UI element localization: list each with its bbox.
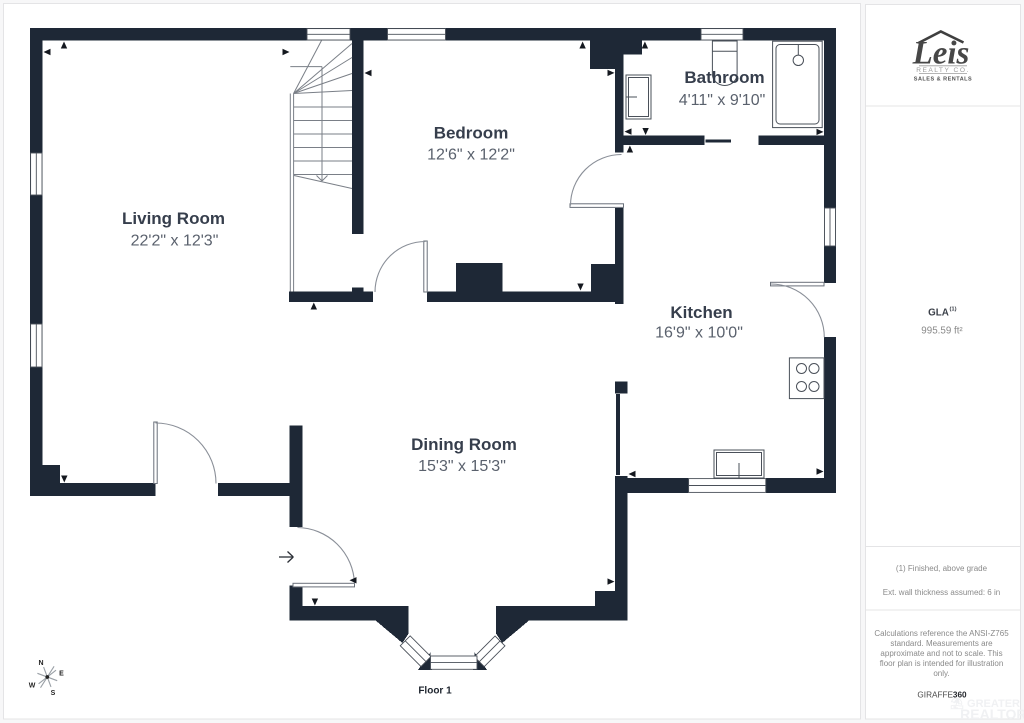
svg-text:4'11" x 9'10": 4'11" x 9'10" bbox=[679, 92, 766, 109]
svg-text:REALTY CO.: REALTY CO. bbox=[916, 67, 970, 74]
svg-text:REALTORS: REALTORS bbox=[960, 706, 1024, 722]
svg-text:12'6" x 12'2": 12'6" x 12'2" bbox=[427, 147, 515, 164]
svg-text:(1) Finished, above grade: (1) Finished, above grade bbox=[896, 564, 988, 573]
svg-text:approximate and not to scale.: approximate and not to scale. This bbox=[880, 649, 1002, 658]
svg-text:22'2" x 12'3": 22'2" x 12'3" bbox=[131, 233, 219, 250]
svg-text:Dining Room: Dining Room bbox=[411, 435, 517, 454]
svg-text:995.59 ft²: 995.59 ft² bbox=[921, 326, 963, 337]
svg-text:Bedroom: Bedroom bbox=[434, 124, 509, 143]
svg-text:Ext. wall thickness assumed: 6: Ext. wall thickness assumed: 6 in bbox=[883, 588, 1000, 597]
svg-text:16'9" x 10'0": 16'9" x 10'0" bbox=[655, 325, 743, 342]
svg-text:only.: only. bbox=[933, 669, 949, 678]
svg-text:(1): (1) bbox=[950, 307, 957, 313]
svg-text:GIRAFFE360: GIRAFFE360 bbox=[917, 691, 967, 700]
svg-text:15'3" x 15'3": 15'3" x 15'3" bbox=[418, 458, 506, 475]
svg-text:E: E bbox=[59, 671, 64, 678]
svg-text:standard. Measurements are: standard. Measurements are bbox=[890, 639, 993, 648]
svg-text:Calculations reference the ANS: Calculations reference the ANSI-Z765 bbox=[874, 629, 1009, 638]
svg-text:Bathroom: Bathroom bbox=[684, 68, 764, 87]
svg-text:S: S bbox=[51, 690, 56, 697]
svg-text:GLA: GLA bbox=[928, 308, 949, 319]
svg-text:SALES & RENTALS: SALES & RENTALS bbox=[914, 77, 972, 83]
svg-text:Floor 1: Floor 1 bbox=[418, 686, 452, 697]
svg-text:W: W bbox=[29, 683, 36, 690]
svg-text:N: N bbox=[38, 660, 43, 667]
svg-text:Living Room: Living Room bbox=[122, 209, 225, 228]
svg-text:Kitchen: Kitchen bbox=[670, 303, 732, 322]
svg-text:floor plan is intended for ill: floor plan is intended for illustration bbox=[880, 659, 1004, 668]
